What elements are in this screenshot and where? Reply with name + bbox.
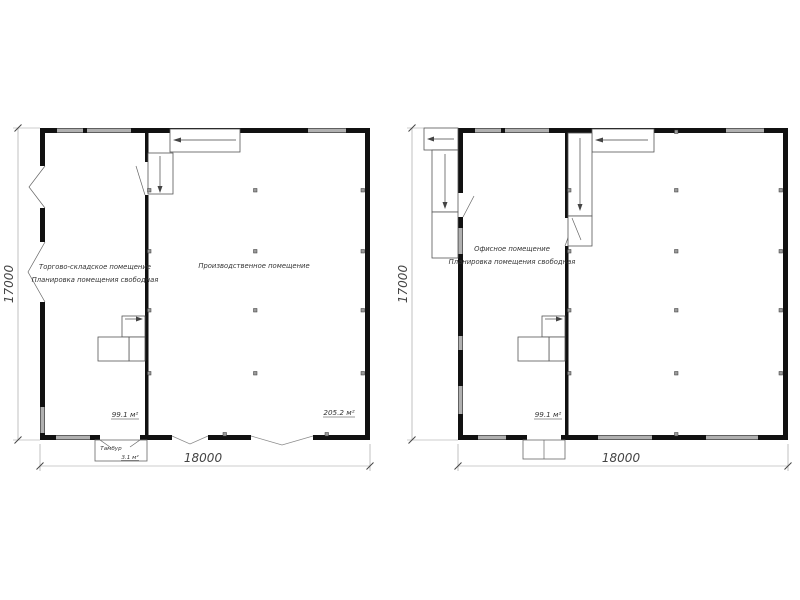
- room1-name-floor-2: Офисное помещение: [474, 245, 550, 253]
- external-stair-floor-2: [424, 128, 458, 258]
- plan-floor-1: Тамбур 3.1 м² Торгово-складское помещени…: [2, 125, 374, 472]
- floor-plan-sheet: Тамбур 3.1 м² Торгово-складское помещени…: [0, 0, 800, 600]
- dim-18000-floor-1: 18000: [184, 451, 223, 465]
- stair-top-floor-1: [148, 129, 240, 194]
- dimension-width-floor-1: 18000: [37, 444, 374, 471]
- dimension-width-floor-2: 18000: [455, 444, 792, 471]
- room2-area-floor-1: 205.2 м²: [323, 408, 354, 417]
- stair-top-floor-2: [568, 129, 654, 246]
- room1-note-floor-2: Планировка помещения свободная: [449, 258, 576, 266]
- walls-floor-2: [458, 128, 789, 441]
- column-markers-floor-1: [148, 189, 365, 437]
- dim-17000-floor-2: 17000: [396, 265, 410, 304]
- windows-floor-2: [459, 129, 765, 440]
- column-markers-floor-2: [568, 130, 783, 436]
- vestibule-area: 3.1 м²: [121, 454, 139, 461]
- vestibule-floor-1: Тамбур 3.1 м²: [95, 440, 147, 461]
- doors-floor-1: [28, 166, 313, 445]
- plan-floor-2: Офисное помещение Планировка помещения с…: [396, 125, 792, 472]
- windows-floor-1: [41, 129, 347, 440]
- dimension-height-floor-1: 17000: [2, 125, 40, 444]
- room1-area-floor-2: 99.1 м²: [535, 410, 562, 419]
- dim-17000-floor-1: 17000: [2, 265, 16, 304]
- doors-floor-2: [463, 196, 574, 246]
- vestibule-name: Тамбур: [100, 446, 122, 452]
- stair-mid-floor-2: [518, 316, 565, 361]
- annex-floor-2: [523, 440, 565, 459]
- room1-note-floor-1: Планировка помещения свободная: [32, 276, 159, 284]
- dim-18000-floor-2: 18000: [602, 451, 641, 465]
- walls-floor-1: [40, 128, 371, 441]
- room2-name-floor-1: Производственное помещение: [198, 262, 309, 270]
- floor-plan-drawing: Тамбур 3.1 м² Торгово-складское помещени…: [0, 0, 800, 600]
- stair-mid-floor-1: [98, 316, 145, 361]
- room1-area-floor-1: 99.1 м²: [112, 410, 139, 419]
- room1-name-floor-1: Торгово-складское помещение: [39, 263, 151, 271]
